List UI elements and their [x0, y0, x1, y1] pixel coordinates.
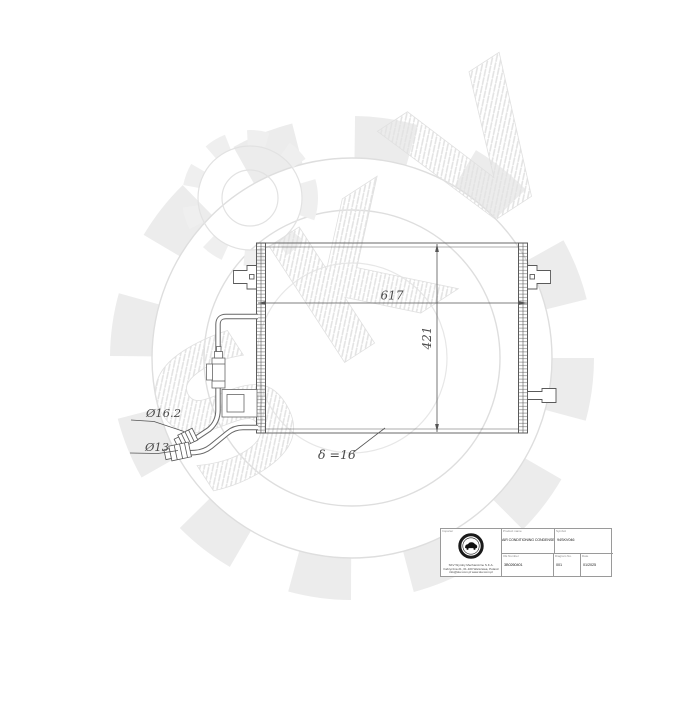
pipe-bracket-block	[222, 390, 257, 418]
symbol-header: Symbol	[556, 530, 566, 534]
dim-pipe-bottom-label: Ø13	[144, 440, 169, 454]
diagram-no-value: 001	[556, 563, 580, 567]
dim-pipe-top-label: Ø16.2	[145, 406, 181, 420]
importer-address-line3: info@skv.com.pl www.skv.com.pl	[441, 571, 501, 575]
oe-number-value: 3B0260401	[504, 563, 553, 567]
brand-logo	[458, 533, 484, 564]
bracket-left	[234, 266, 257, 290]
title-block: Importer SKV Wyroby Mechaniczne S.K.A. F…	[440, 528, 612, 577]
diagram-no-header: Diagram No.	[555, 555, 572, 559]
condenser-drawing-canvas: S K V	[0, 0, 700, 700]
date-value: 01/2025	[583, 563, 613, 567]
title-block-product-cell: Product name AIR CONDITIONING CONDENSER	[501, 529, 554, 553]
title-block-importer-cell: Importer SKV Wyroby Mechaniczne S.K.A. F…	[441, 529, 501, 577]
dim-width-label: 617	[381, 289, 404, 303]
dim-thickness-label: δ =16	[318, 447, 356, 462]
oe-number-header: OE Number	[503, 555, 519, 559]
title-block-diagram-cell: Diagram No. 001	[553, 553, 580, 577]
dim-height-label: 421	[420, 327, 434, 351]
importer-header: Importer	[442, 530, 453, 534]
bracket-right-bottom	[528, 389, 557, 403]
title-block-symbol-cell: Symbol 94SKV046	[554, 529, 612, 553]
title-block-date-cell: Date 01/2025	[580, 553, 613, 577]
symbol-value: 94SKV046	[557, 538, 612, 542]
brand-logo-stamp	[458, 533, 484, 559]
title-block-oe-cell: OE Number 3B0260401	[501, 553, 553, 577]
product-name-value: AIR CONDITIONING CONDENSER	[502, 538, 554, 542]
product-name-header: Product name	[503, 530, 522, 534]
technical-drawing-page: S K V	[0, 0, 700, 700]
date-header: Date	[582, 555, 588, 559]
